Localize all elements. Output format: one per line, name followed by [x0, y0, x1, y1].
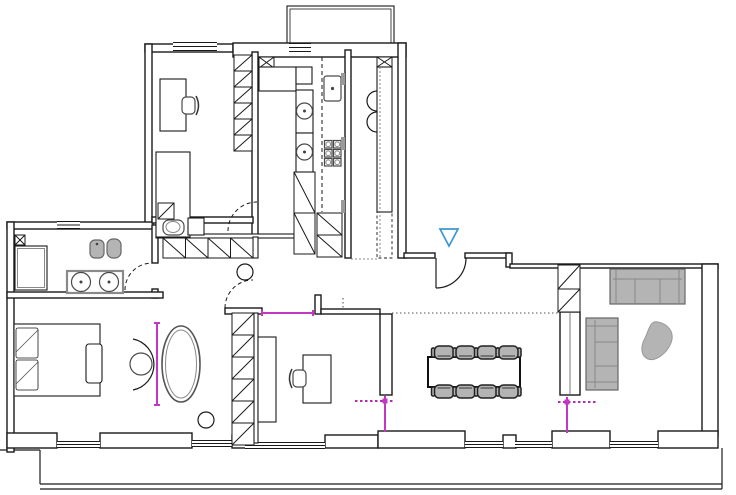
office-wardrobe-cell-6: [234, 135, 252, 151]
hall-cabinet-dashed: [377, 212, 392, 258]
bath-door-arc: [125, 263, 152, 290]
hall-wardrobe-cell-3: [208, 238, 231, 258]
wall-entry-a: [404, 253, 435, 258]
dryer-door-dot: [303, 151, 306, 154]
wall-south-8: [658, 431, 718, 448]
partition-living-node: [565, 400, 570, 405]
dining-table: [428, 357, 520, 387]
window-dining-1: [465, 441, 503, 448]
wall-west: [7, 222, 14, 452]
window-office: [173, 42, 217, 51]
office-wardrobe-cell-5: [234, 119, 252, 135]
window-bath: [57, 221, 80, 229]
stool: [198, 412, 214, 428]
radiator-2: [341, 137, 345, 150]
bed-pillow-top: [16, 328, 38, 358]
wall-south-1: [7, 433, 57, 448]
floor-plan-page: [0, 0, 736, 495]
radiator-1: [341, 73, 345, 85]
wall-living-top: [510, 264, 718, 268]
window-dining-2: [515, 441, 552, 448]
bedroom-chair: [130, 353, 152, 375]
study-chair: [290, 369, 307, 388]
wall-entry-b: [465, 253, 510, 258]
study-wardrobe-cell-2: [232, 335, 254, 357]
wall-office-left: [145, 44, 152, 226]
study-desk: [303, 355, 331, 403]
wall-study-top-right: [321, 309, 380, 314]
wall-south-2: [100, 433, 192, 448]
wall-living-right: [702, 264, 718, 436]
wc-duct: [158, 203, 174, 219]
wc-cabinet: [188, 218, 204, 235]
wall-study-pier: [315, 295, 321, 314]
wall-office-right: [252, 52, 258, 238]
floor-plan-canvas: [0, 0, 736, 495]
study-sideboard: [258, 337, 276, 422]
wall-south-6: [503, 435, 516, 448]
wall-study-dining-pier: [380, 314, 392, 395]
balcony-rail-inner: [290, 9, 391, 44]
hall-lamp: [237, 264, 253, 280]
window-living: [610, 441, 658, 448]
hall-cabinet: [377, 67, 392, 212]
bed-headboard: [86, 344, 102, 383]
wall-south-5: [378, 431, 465, 448]
wall-kitchen-right: [345, 50, 351, 258]
hall-wardrobe-cell-2: [186, 238, 209, 258]
office-wardrobe-cell-2: [234, 71, 252, 87]
office-wardrobe-cell-1: [234, 55, 252, 71]
wall-south-4: [325, 435, 378, 448]
window-bedroom-1: [57, 441, 100, 448]
dining-chair-4: [496, 346, 521, 359]
wall-south-7: [552, 431, 610, 448]
kitchen-tall-unit-3: [317, 213, 342, 235]
toilet: [90, 240, 104, 258]
balcony-door-opening: [312, 44, 321, 56]
hall-wardrobe-cell-4: [231, 238, 254, 258]
kitchen-sink-drain: [331, 87, 334, 90]
bed-pillow-bottom: [16, 360, 38, 390]
study-wardrobe-cell-6: [232, 423, 254, 445]
partition-dining-node: [383, 399, 388, 404]
office-wardrobe-cell-4: [234, 103, 252, 119]
sofa-large: [610, 269, 685, 304]
bathtub-outer: [162, 326, 200, 402]
wall-row-endcap: [253, 237, 258, 258]
entrance-marker-triangle: [440, 229, 458, 246]
wall-wing-right: [398, 43, 406, 258]
column-kitchen-left: [259, 57, 274, 68]
hall-wardrobe-cell-1: [163, 238, 186, 258]
study-wardrobe-cell-1: [232, 313, 254, 335]
vanity-sink-right-dot: [108, 281, 111, 284]
bidet: [107, 239, 121, 258]
window-bedroom-2: [192, 440, 232, 447]
kitchen-tall-unit-1: [294, 172, 315, 213]
office-wardrobe-cell-3: [234, 87, 252, 103]
study-wardrobe-cell-5: [232, 401, 254, 423]
shower: [15, 246, 47, 290]
living-shelf-cell-2: [558, 289, 580, 312]
lounge-blob: [642, 322, 672, 360]
study-wardrobe-cell-3: [232, 357, 254, 379]
window-kitchen: [289, 43, 311, 52]
living-shelf-cell-1: [558, 265, 580, 289]
kitchen-tall-unit-4: [317, 235, 342, 257]
hall-bump-2: [367, 112, 377, 132]
radiator-3: [341, 200, 345, 213]
hall-bump-1: [367, 91, 377, 111]
column-hall: [377, 57, 392, 67]
sofa-small: [586, 318, 618, 390]
column-bath: [15, 235, 25, 245]
washer-door-dot: [303, 110, 306, 113]
study-wardrobe-cell-4: [232, 379, 254, 401]
kitchen-tall-unit-2: [294, 213, 315, 254]
entry-door-arc: [436, 258, 466, 288]
corridor-door-arc: [225, 280, 253, 308]
office-chair: [182, 96, 199, 115]
kitchen-cabinet-top-a: [259, 67, 296, 91]
vanity-sink-left-dot: [80, 281, 83, 284]
dining-chair-8: [496, 385, 521, 398]
toilet-dot: [96, 243, 99, 246]
study-wardrobe-edge: [254, 313, 258, 443]
kitchen-cabinet-top-b: [296, 67, 312, 84]
